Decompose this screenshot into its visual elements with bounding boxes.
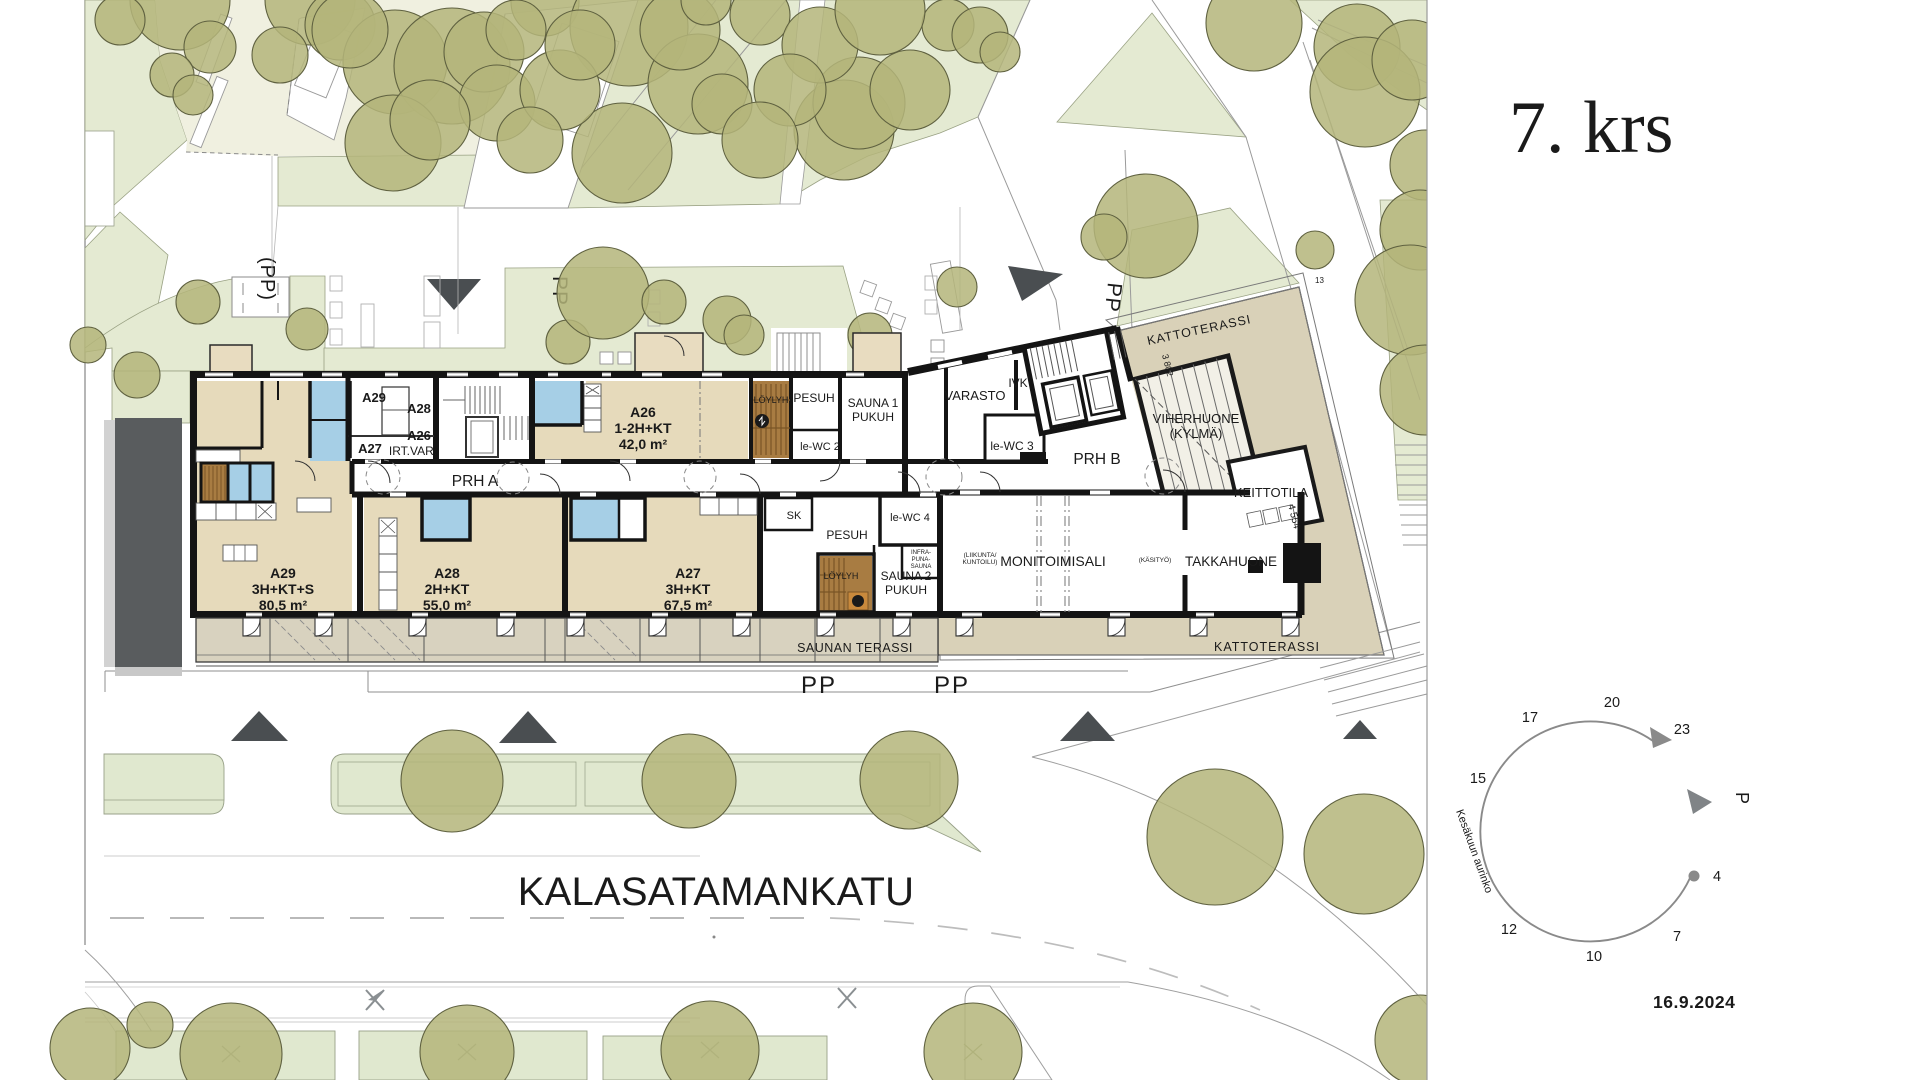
svg-text:(KYLMÄ): (KYLMÄ) [1170, 426, 1223, 441]
svg-text:LÖYLYH: LÖYLYH [824, 571, 859, 581]
svg-text:PESUH: PESUH [793, 391, 834, 405]
svg-text:PUKUH: PUKUH [852, 410, 894, 424]
svg-text:IVK: IVK [1008, 376, 1027, 390]
svg-text:1-2H+KT: 1-2H+KT [614, 420, 672, 436]
svg-text:23: 23 [1674, 722, 1690, 738]
svg-text:INFRA-: INFRA- [911, 550, 931, 556]
svg-text:KATTOTERASSI: KATTOTERASSI [1214, 640, 1320, 654]
svg-text:80,5 m²: 80,5 m² [259, 597, 308, 613]
svg-text:PESUH: PESUH [826, 528, 867, 542]
svg-text:PRH B: PRH B [1073, 451, 1120, 468]
svg-text:TAKKAHUONE: TAKKAHUONE [1185, 554, 1277, 569]
svg-text:A27: A27 [358, 441, 382, 456]
svg-text:13: 13 [1315, 276, 1324, 285]
svg-text:le-WC 3: le-WC 3 [990, 439, 1034, 453]
svg-text:2H+KT: 2H+KT [425, 581, 470, 597]
svg-text:KEITTOTILA: KEITTOTILA [1234, 485, 1308, 500]
svg-text:15: 15 [1470, 771, 1486, 787]
svg-text:SK: SK [787, 510, 802, 522]
svg-text:A29: A29 [362, 390, 386, 405]
svg-text:IRT.VAR.: IRT.VAR. [389, 444, 437, 458]
svg-text:A26: A26 [630, 404, 656, 420]
svg-text:SAUNAN TERASSI: SAUNAN TERASSI [797, 641, 913, 655]
svg-text:A27: A27 [675, 565, 701, 581]
svg-text:(LIIKUNTA/: (LIIKUNTA/ [964, 552, 997, 559]
svg-text:PP: PP [1100, 281, 1126, 313]
svg-text:LÖYLYH: LÖYLYH [754, 395, 789, 405]
svg-text:17: 17 [1522, 710, 1538, 726]
svg-text:A26: A26 [407, 428, 431, 443]
svg-text:VIHERHUONE: VIHERHUONE [1153, 411, 1240, 426]
svg-text:KALASATAMANKATU: KALASATAMANKATU [518, 870, 914, 914]
svg-text:A28: A28 [434, 565, 460, 581]
svg-text:55,0 m²: 55,0 m² [423, 597, 472, 613]
svg-text:PUKUH: PUKUH [885, 583, 927, 597]
svg-text:7. krs: 7. krs [1509, 87, 1673, 169]
svg-text:3H+KT: 3H+KT [666, 581, 711, 597]
svg-text:7: 7 [1673, 929, 1681, 945]
svg-text:SAUNA 1: SAUNA 1 [848, 396, 899, 410]
svg-text:A28: A28 [407, 401, 431, 416]
svg-text:PP: PP [801, 672, 837, 699]
svg-text:le-WC 4: le-WC 4 [890, 512, 930, 524]
svg-text:PUNA-: PUNA- [912, 557, 931, 563]
svg-text:MONITOIMISALI: MONITOIMISALI [1000, 553, 1106, 569]
svg-text:(KÄSITYÖ): (KÄSITYÖ) [1139, 556, 1172, 564]
svg-text:42,0 m²: 42,0 m² [619, 436, 668, 452]
svg-text:(PP): (PP) [256, 257, 278, 301]
svg-text:PP: PP [934, 672, 970, 699]
svg-text:P: P [1732, 792, 1752, 804]
svg-text:3H+KT+S: 3H+KT+S [252, 581, 314, 597]
svg-text:KUNTOILU): KUNTOILU) [963, 559, 998, 566]
svg-text:10: 10 [1586, 949, 1602, 965]
svg-text:PRH A: PRH A [452, 473, 499, 490]
svg-text:VARASTO: VARASTO [945, 388, 1006, 403]
svg-text:A29: A29 [270, 565, 296, 581]
svg-text:4: 4 [1713, 869, 1721, 885]
svg-text:le-WC 2: le-WC 2 [800, 441, 840, 453]
svg-text:16.9.2024: 16.9.2024 [1653, 992, 1735, 1012]
svg-text:67,5 m²: 67,5 m² [664, 597, 713, 613]
svg-text:20: 20 [1604, 695, 1620, 711]
svg-text:12: 12 [1501, 922, 1517, 938]
svg-text:SAUNA 2: SAUNA 2 [881, 569, 932, 583]
